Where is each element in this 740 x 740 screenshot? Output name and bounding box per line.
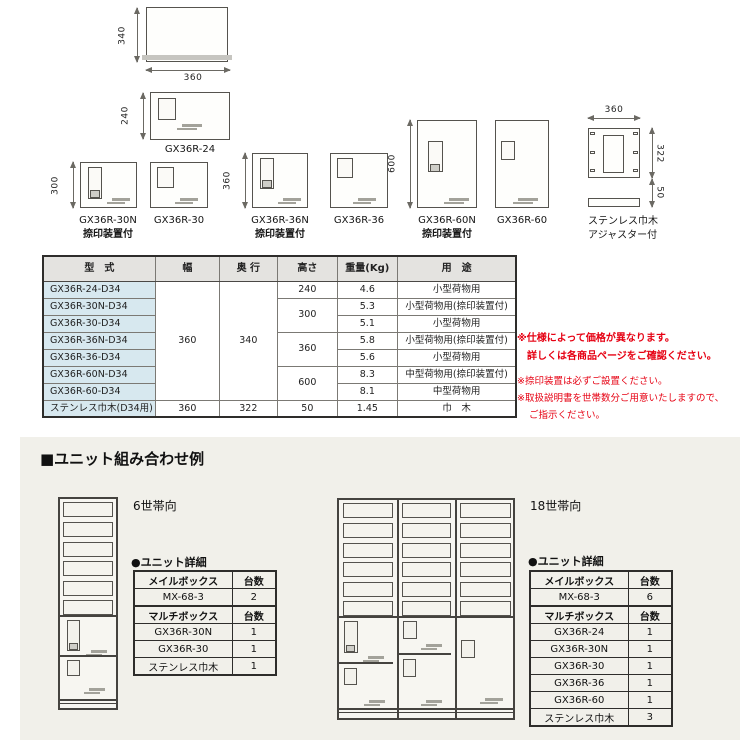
detail-row: メイルボックス 台数 bbox=[530, 571, 672, 589]
gx36r30-label: GX36R-30 bbox=[150, 215, 208, 227]
dim-360-top: 360 bbox=[173, 73, 213, 84]
detail-row: GX36R-30N 1 bbox=[530, 641, 672, 658]
detail-cell: マルチボックス bbox=[530, 606, 628, 624]
model-cell: GX36R-60N-D34 bbox=[43, 366, 155, 383]
unit-18-label: 18世帯向 bbox=[530, 497, 581, 514]
detail-cell: 3 bbox=[628, 709, 672, 727]
dim-322: 322 bbox=[654, 139, 665, 169]
combination-heading: ■ユニット組み合わせ例 bbox=[40, 448, 204, 469]
top-view-box bbox=[146, 7, 228, 62]
model-cell: GX36R-30N-D34 bbox=[43, 298, 155, 315]
height-cell: 360 bbox=[277, 332, 337, 366]
gx36r24-window bbox=[158, 98, 176, 120]
gx36r60n-box bbox=[417, 120, 477, 208]
use-cell: 小型荷物用 bbox=[397, 349, 516, 366]
detail-cell: 1 bbox=[628, 675, 672, 692]
dim-50: 50 bbox=[654, 178, 665, 208]
detail-cell: GX36R-30 bbox=[530, 658, 628, 675]
note-line: ※取扱説明書を世帯数分ご用意いたしますので、 bbox=[517, 393, 737, 405]
use-cell: 小型荷物用(捺印装置付) bbox=[397, 332, 516, 349]
compartment-divider bbox=[60, 615, 116, 617]
mail-slot bbox=[63, 581, 113, 596]
depth-cell: 322 bbox=[219, 400, 277, 417]
compartment-window bbox=[67, 660, 80, 676]
detail-cell: GX36R-30N bbox=[134, 624, 232, 641]
compartment-divider bbox=[339, 616, 513, 618]
mail-slot bbox=[343, 582, 393, 597]
gx36r30n-sublabel: 捺印装置付 bbox=[78, 229, 138, 241]
dim-600: 600 bbox=[388, 149, 399, 179]
detail-cell: メイルボックス bbox=[134, 571, 232, 589]
detail-row: マルチボックス 台数 bbox=[530, 606, 672, 624]
detail-cell: MX-68-3 bbox=[530, 589, 628, 607]
compartment-divider bbox=[60, 655, 116, 657]
gx36r60-box bbox=[495, 120, 549, 208]
notes-block: ※仕様によって価格が異なります。 詳しくは各商品ページをご確認ください。 ※捺印… bbox=[517, 333, 737, 427]
detail-cell: 1 bbox=[628, 658, 672, 675]
stainless-inner-rect bbox=[603, 135, 624, 173]
mail-slot bbox=[343, 523, 393, 538]
base-strip bbox=[60, 703, 116, 709]
handle-icon bbox=[91, 650, 107, 653]
compartment-window bbox=[461, 640, 475, 658]
weight-cell: 1.45 bbox=[337, 400, 397, 417]
gx36r60-label: GX36R-60 bbox=[495, 215, 549, 227]
detail-cell: MX-68-3 bbox=[134, 589, 232, 607]
dim-line-360v bbox=[245, 153, 246, 208]
mail-slot bbox=[63, 542, 113, 557]
note-line: ※捺印装置は必ずご設置ください。 bbox=[517, 376, 737, 388]
gx36r24-handle-icon bbox=[182, 124, 202, 127]
detail-cell: 台数 bbox=[628, 571, 672, 589]
col-header-model: 型 式 bbox=[43, 256, 155, 281]
use-cell: 小型荷物用 bbox=[397, 315, 516, 332]
handle-icon bbox=[89, 688, 105, 691]
base-strip bbox=[339, 712, 513, 719]
note-line: ※仕様によって価格が異なります。 bbox=[517, 333, 737, 345]
handle-icon bbox=[368, 656, 384, 659]
mail-slot bbox=[402, 523, 451, 538]
compartment-window bbox=[344, 668, 357, 685]
mail-slot bbox=[402, 503, 451, 518]
detail-cell: 台数 bbox=[232, 571, 276, 589]
mail-slot bbox=[63, 502, 113, 517]
handle-icon bbox=[485, 698, 503, 701]
detail-row: GX36R-24 1 bbox=[530, 624, 672, 641]
detail-cell: GX36R-30 bbox=[134, 641, 232, 658]
dim-240: 240 bbox=[121, 101, 132, 131]
compartment-window bbox=[403, 621, 417, 639]
weight-cell: 8.1 bbox=[337, 383, 397, 400]
detail-cell: 1 bbox=[628, 624, 672, 641]
mail-slot bbox=[460, 523, 511, 538]
detail-cell: 1 bbox=[232, 641, 276, 658]
gx36r36-window bbox=[337, 158, 353, 178]
width-cell: 360 bbox=[155, 400, 219, 417]
gx36r36-label: GX36R-36 bbox=[330, 215, 388, 227]
gx36r36n-sublabel: 捺印装置付 bbox=[250, 229, 310, 241]
detail-cell: 台数 bbox=[232, 606, 276, 624]
spec-row: GX36R-60N-D34 600 8.3 中型荷物用(捺印装置付) bbox=[43, 366, 516, 383]
weight-cell: 4.6 bbox=[337, 281, 397, 298]
gx36r30n-label: GX36R-30N bbox=[78, 215, 138, 227]
handle-icon bbox=[426, 700, 442, 703]
col-header-use: 用 途 bbox=[397, 256, 516, 281]
compartment-divider bbox=[339, 708, 513, 710]
detail-row: ステンレス巾木 1 bbox=[134, 658, 276, 676]
height-cell: 50 bbox=[277, 400, 337, 417]
weight-cell: 5.1 bbox=[337, 315, 397, 332]
mail-slot bbox=[63, 561, 113, 576]
col-header-height: 高さ bbox=[277, 256, 337, 281]
gx36r60n-sublabel: 捺印装置付 bbox=[417, 229, 477, 241]
width-cell: 360 bbox=[155, 281, 219, 400]
detail-row: GX36R-60 1 bbox=[530, 692, 672, 709]
spec-table: 型 式 幅 奥 行 高さ 重量(Kg) 用 途 GX36R-24-D34 360… bbox=[42, 255, 517, 418]
stainless-notch bbox=[590, 151, 595, 154]
mail-slot bbox=[343, 601, 393, 616]
col-header-depth: 奥 行 bbox=[219, 256, 277, 281]
model-cell: GX36R-36N-D34 bbox=[43, 332, 155, 349]
gx36r30n-stamp bbox=[90, 190, 100, 198]
column-divider bbox=[397, 500, 399, 718]
mail-slot bbox=[343, 543, 393, 558]
detail-cell: 2 bbox=[232, 589, 276, 607]
detail-cell: GX36R-60 bbox=[530, 692, 628, 709]
mail-slot bbox=[460, 562, 511, 577]
mail-slot bbox=[402, 562, 451, 577]
detail-cell: GX36R-36 bbox=[530, 675, 628, 692]
gx36r36n-stamp bbox=[262, 180, 272, 188]
compartment-divider bbox=[397, 653, 451, 655]
detail-row: ステンレス巾木 3 bbox=[530, 709, 672, 727]
dim-300: 300 bbox=[51, 171, 62, 201]
unit-18-detail-table: メイルボックス 台数 MX-68-3 6 マルチボックス 台数 GX36R-24… bbox=[529, 570, 673, 727]
note-line: ご指示ください。 bbox=[517, 410, 737, 422]
compartment-stamp bbox=[69, 643, 78, 650]
mail-slot bbox=[460, 543, 511, 558]
compartment-divider bbox=[60, 699, 116, 701]
detail-row: マルチボックス 台数 bbox=[134, 606, 276, 624]
model-cell: GX36R-36-D34 bbox=[43, 349, 155, 366]
gx36r30-window bbox=[157, 167, 174, 188]
detail-row: GX36R-30N 1 bbox=[134, 624, 276, 641]
detail-cell: 6 bbox=[628, 589, 672, 607]
spec-row: GX36R-24-D34 360 340 240 4.6 小型荷物用 bbox=[43, 281, 516, 298]
stainless-notch bbox=[633, 132, 638, 135]
weight-cell: 5.8 bbox=[337, 332, 397, 349]
unit-18-detail-heading: ●ユニット詳細 bbox=[528, 553, 604, 569]
model-cell: GX36R-30-D34 bbox=[43, 315, 155, 332]
detail-cell: GX36R-24 bbox=[530, 624, 628, 641]
weight-cell: 5.3 bbox=[337, 298, 397, 315]
dim-line-600 bbox=[410, 120, 411, 208]
gx36r60n-label: GX36R-60N bbox=[417, 215, 477, 227]
gx36r36-handle-icon bbox=[358, 198, 376, 201]
mail-slot bbox=[343, 503, 393, 518]
use-cell: 中型荷物用(捺印装置付) bbox=[397, 366, 516, 383]
spec-sheet-page: 340 360 240 GX36R-24 300 GX36R-30N 捺印装置付… bbox=[0, 0, 740, 740]
stainless-notch bbox=[633, 151, 638, 154]
gx36r60-window bbox=[501, 141, 515, 160]
detail-cell: 1 bbox=[628, 641, 672, 658]
mail-slot bbox=[460, 582, 511, 597]
dim-360-st: 360 bbox=[599, 105, 629, 116]
spec-header-row: 型 式 幅 奥 行 高さ 重量(Kg) 用 途 bbox=[43, 256, 516, 281]
spec-row: GX36R-36N-D34 360 5.8 小型荷物用(捺印装置付) bbox=[43, 332, 516, 349]
model-cell: ステンレス巾木(D34用) bbox=[43, 400, 155, 417]
detail-cell: ステンレス巾木 bbox=[134, 658, 232, 676]
model-cell: GX36R-60-D34 bbox=[43, 383, 155, 400]
stainless-notch bbox=[590, 169, 595, 172]
detail-cell: 1 bbox=[232, 624, 276, 641]
height-cell: 240 bbox=[277, 281, 337, 298]
gx36r30n-handle-icon bbox=[112, 198, 130, 201]
stainless-base-bar bbox=[588, 198, 640, 207]
gx36r36n-handle-icon bbox=[283, 198, 301, 201]
handle-icon bbox=[426, 644, 442, 647]
spec-row-stainless: ステンレス巾木(D34用) 360 322 50 1.45 巾 木 bbox=[43, 400, 516, 417]
detail-row: GX36R-30 1 bbox=[530, 658, 672, 675]
col-header-width: 幅 bbox=[155, 256, 219, 281]
dim-line-340 bbox=[137, 8, 138, 62]
mail-slot bbox=[402, 543, 451, 558]
dim-line-360-st bbox=[588, 118, 640, 119]
stainless-notch bbox=[633, 169, 638, 172]
note-line: 詳しくは各商品ページをご確認ください。 bbox=[517, 351, 737, 363]
weight-cell: 5.6 bbox=[337, 349, 397, 366]
detail-cell: 台数 bbox=[628, 606, 672, 624]
top-view-front-strip bbox=[142, 55, 232, 60]
column-divider bbox=[455, 500, 457, 718]
detail-cell: 1 bbox=[628, 692, 672, 709]
gx36r36n-label: GX36R-36N bbox=[250, 215, 310, 227]
unit-diagram-6 bbox=[58, 497, 118, 710]
detail-row: GX36R-30 1 bbox=[134, 641, 276, 658]
depth-cell: 340 bbox=[219, 281, 277, 400]
unit-diagram-18 bbox=[337, 498, 515, 720]
stainless-sublabel: アジャスター付 bbox=[588, 230, 657, 242]
use-cell: 巾 木 bbox=[397, 400, 516, 417]
mail-slot bbox=[460, 503, 511, 518]
compartment-divider bbox=[339, 662, 393, 664]
mail-slot bbox=[402, 601, 451, 616]
unit-6-detail-table: メイルボックス 台数 MX-68-3 2 マルチボックス 台数 GX36R-30… bbox=[133, 570, 277, 676]
spec-row: GX36R-30N-D34 300 5.3 小型荷物用(捺印装置付) bbox=[43, 298, 516, 315]
use-cell: 中型荷物用 bbox=[397, 383, 516, 400]
compartment-stamp bbox=[346, 645, 355, 652]
gx36r24-label: GX36R-24 bbox=[150, 144, 230, 156]
stainless-notch bbox=[590, 132, 595, 135]
detail-row: MX-68-3 2 bbox=[134, 589, 276, 607]
model-cell: GX36R-24-D34 bbox=[43, 281, 155, 298]
detail-cell: GX36R-30N bbox=[530, 641, 628, 658]
detail-row: メイルボックス 台数 bbox=[134, 571, 276, 589]
detail-row: GX36R-36 1 bbox=[530, 675, 672, 692]
dim-line-300 bbox=[73, 162, 74, 208]
height-cell: 300 bbox=[277, 298, 337, 332]
detail-cell: 1 bbox=[232, 658, 276, 676]
unit-6-detail-heading: ●ユニット詳細 bbox=[131, 554, 207, 570]
compartment-window bbox=[403, 659, 416, 677]
gx36r60n-stamp bbox=[430, 164, 440, 172]
mail-slot bbox=[343, 562, 393, 577]
gx36r30-handle-icon bbox=[180, 198, 198, 201]
detail-cell: ステンレス巾木 bbox=[530, 709, 628, 727]
unit-6-label: 6世帯向 bbox=[133, 497, 177, 514]
dim-line-360-top bbox=[146, 70, 230, 71]
mail-slot bbox=[63, 600, 113, 615]
handle-icon bbox=[369, 700, 385, 703]
mail-slot bbox=[402, 582, 451, 597]
detail-row: MX-68-3 6 bbox=[530, 589, 672, 607]
use-cell: 小型荷物用(捺印装置付) bbox=[397, 298, 516, 315]
mail-slot bbox=[63, 522, 113, 537]
use-cell: 小型荷物用 bbox=[397, 281, 516, 298]
gx36r60-handle-icon bbox=[518, 198, 538, 201]
dim-340: 340 bbox=[118, 21, 129, 51]
dim-line-240 bbox=[143, 93, 144, 139]
col-header-weight: 重量(Kg) bbox=[337, 256, 397, 281]
height-cell: 600 bbox=[277, 366, 337, 400]
stainless-label: ステンレス巾木 bbox=[588, 216, 658, 228]
dim-360v: 360 bbox=[223, 166, 234, 196]
detail-cell: マルチボックス bbox=[134, 606, 232, 624]
detail-cell: メイルボックス bbox=[530, 571, 628, 589]
gx36r60n-handle-icon bbox=[449, 198, 469, 201]
weight-cell: 8.3 bbox=[337, 366, 397, 383]
mail-slot bbox=[460, 601, 511, 616]
